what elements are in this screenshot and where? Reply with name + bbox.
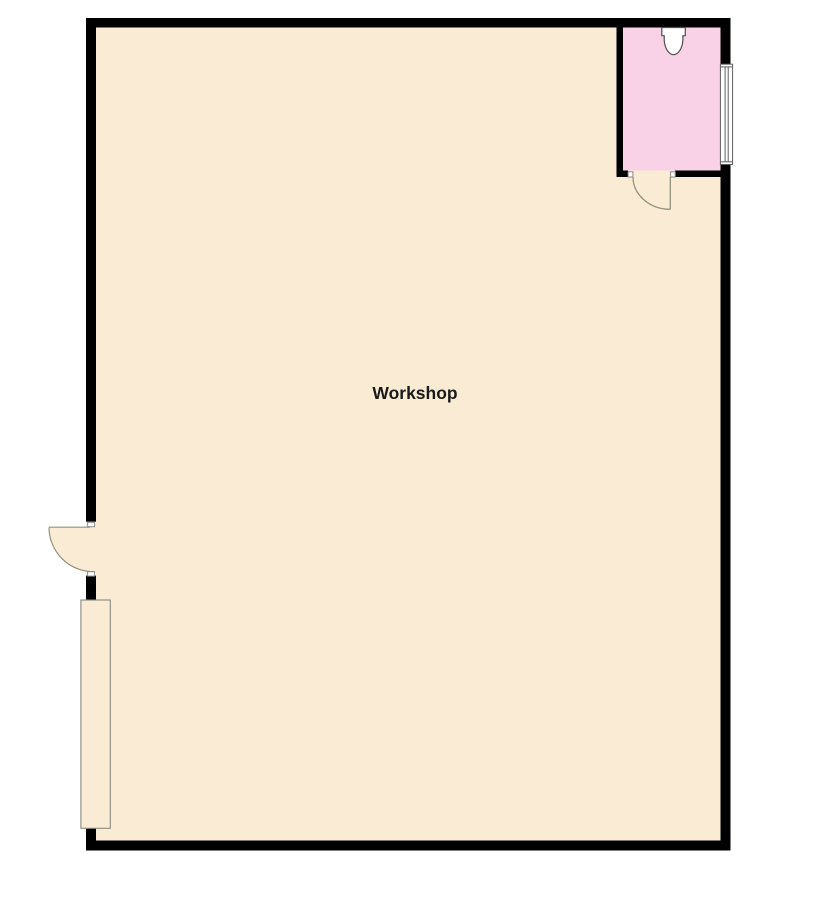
svg-text:Workshop: Workshop [372,383,457,403]
